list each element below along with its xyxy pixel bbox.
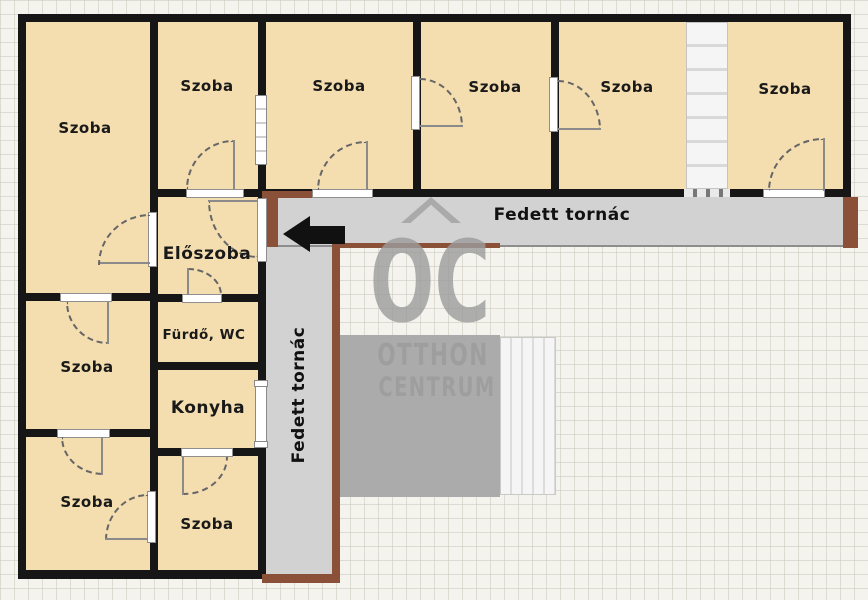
room-label-furdo-wc: Fürdő, WC xyxy=(144,328,264,342)
room-label-szoba-top-3: Szoba xyxy=(289,78,389,94)
room-label-szoba-bottom-left: Szoba xyxy=(37,494,137,510)
door-sill xyxy=(186,189,244,198)
window-rooms-2-3 xyxy=(255,95,267,165)
room-label-konyha: Konyha xyxy=(148,399,268,418)
wall-left-column-divider xyxy=(150,22,158,571)
room-label-szoba-top-5: Szoba xyxy=(577,79,677,95)
room-label-szoba-top-left: Szoba xyxy=(35,120,135,136)
room-label-szoba-bottom-center: Szoba xyxy=(157,516,257,532)
door-leaf xyxy=(182,457,184,495)
watermark-logo: OC xyxy=(362,228,498,338)
room-label-szoba-top-2: Szoba xyxy=(157,78,257,94)
door-leaf xyxy=(105,538,148,540)
wall-furdo-konyha xyxy=(158,362,259,370)
wood-cap-vporch-bottom xyxy=(262,574,340,583)
room-label-eloszoba: Előszoba xyxy=(147,245,267,263)
door-leaf xyxy=(823,138,825,191)
door-sill xyxy=(60,293,112,302)
door-leaf xyxy=(208,200,258,202)
room-label-szoba-top-right: Szoba xyxy=(735,81,835,97)
wood-cap-porch-right xyxy=(843,197,858,248)
watermark-line1: OTTHON xyxy=(361,343,505,368)
door-leaf xyxy=(420,125,463,127)
door-leaf xyxy=(233,140,235,189)
door-leaf xyxy=(100,262,150,264)
door-sill xyxy=(147,491,156,543)
staircase-top xyxy=(686,22,728,189)
room-label-szoba-top-4: Szoba xyxy=(445,79,545,95)
watermark-line2: CENTRUM xyxy=(365,376,509,399)
wall-bottom xyxy=(18,570,266,579)
door-sill xyxy=(312,189,373,198)
window-konyha-cap-top xyxy=(254,380,268,387)
door-leaf xyxy=(366,141,368,190)
floor-plan: Szoba Szoba Szoba Szoba Szoba Szoba Elős… xyxy=(0,0,868,600)
window-konyha-cap-bottom xyxy=(254,441,268,448)
wood-trim-vporch-right xyxy=(332,247,340,575)
door-leaf xyxy=(107,302,109,344)
door-sill xyxy=(181,448,233,457)
door-sill xyxy=(182,294,222,303)
door-sill xyxy=(549,77,558,132)
entrance-arrow-icon xyxy=(283,216,310,252)
stair-opening xyxy=(684,189,730,197)
door-leaf xyxy=(558,128,601,130)
room-label-szoba-mid-left: Szoba xyxy=(37,359,137,375)
wall-right xyxy=(843,14,851,197)
entrance-arrow-shaft xyxy=(308,226,345,244)
door-leaf xyxy=(101,437,103,475)
door-sill xyxy=(411,76,420,130)
wall-top xyxy=(18,14,851,22)
porch-vertical-label: Fedett tornác xyxy=(290,282,308,508)
staircase-terrace xyxy=(500,337,556,495)
door-leaf xyxy=(187,268,189,295)
